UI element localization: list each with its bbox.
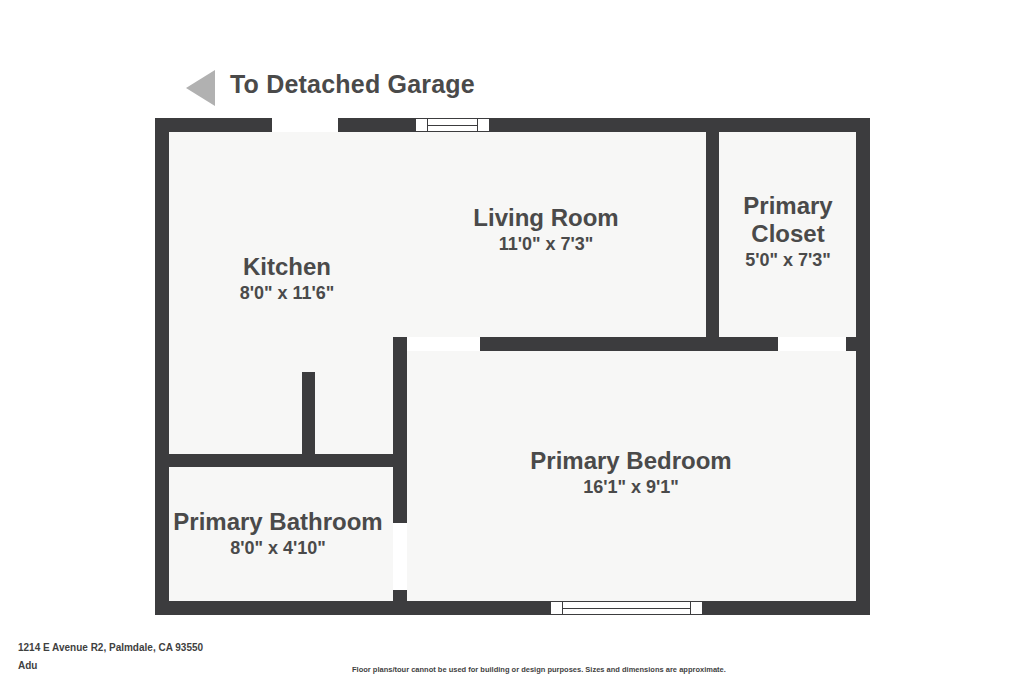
window-pane [427, 119, 478, 131]
left-arrow-icon [186, 70, 215, 106]
wall-bedroom-left-lower [393, 590, 407, 615]
garage-direction-label: To Detached Garage [230, 70, 475, 99]
disclaimer-text: Floor plans/tour cannot be used for buil… [352, 665, 726, 674]
wall-left [155, 118, 169, 615]
wall-bathroom-top [169, 454, 407, 467]
door-opening-bathroom [393, 523, 407, 590]
room-label-primary-bedroom: Primary Bedroom 16'1" x 9'1" [530, 447, 731, 500]
wall-closet-bottom-right [846, 337, 856, 351]
room-name: Primary Bathroom [173, 508, 382, 536]
room-label-primary-bathroom: Primary Bathroom 8'0" x 4'10" [173, 508, 382, 561]
wall-bottom [155, 601, 870, 615]
room-dimensions: 16'1" x 9'1" [530, 475, 731, 500]
wall-top [155, 118, 870, 132]
wall-kitchen-stub [302, 372, 315, 467]
window-living-room [415, 118, 490, 132]
wall-right [856, 118, 870, 615]
room-name: Primary Closet [723, 192, 853, 248]
room-label-primary-closet: Primary Closet 5'0" x 7'3" [723, 192, 853, 273]
door-opening-bedroom [407, 337, 480, 351]
window-bedroom [550, 601, 703, 615]
room-dimensions: 5'0" x 7'3" [723, 248, 853, 273]
unit-label: Adu [18, 660, 37, 671]
floorplan-image: To Detached Garage Kitchen 8'0" x 11' [0, 0, 1024, 683]
room-name: Living Room [473, 204, 618, 232]
room-dimensions: 8'0" x 4'10" [173, 536, 382, 561]
wall-bedroom-top [480, 337, 778, 351]
window-pane [562, 602, 691, 614]
property-address: 1214 E Avenue R2, Palmdale, CA 93550 [18, 642, 203, 653]
room-name: Primary Bedroom [530, 447, 731, 475]
wall-bedroom-left-upper [393, 337, 407, 523]
room-dimensions: 8'0" x 11'6" [240, 281, 335, 306]
floorplan: Kitchen 8'0" x 11'6" Living Room 11'0" x… [155, 118, 870, 615]
room-name: Kitchen [240, 253, 335, 281]
room-dimensions: 11'0" x 7'3" [473, 232, 618, 257]
room-label-kitchen: Kitchen 8'0" x 11'6" [240, 253, 335, 306]
room-label-living-room: Living Room 11'0" x 7'3" [473, 204, 618, 257]
door-opening-entry [272, 118, 338, 132]
door-opening-closet [778, 337, 846, 351]
wall-closet-left [706, 132, 719, 351]
